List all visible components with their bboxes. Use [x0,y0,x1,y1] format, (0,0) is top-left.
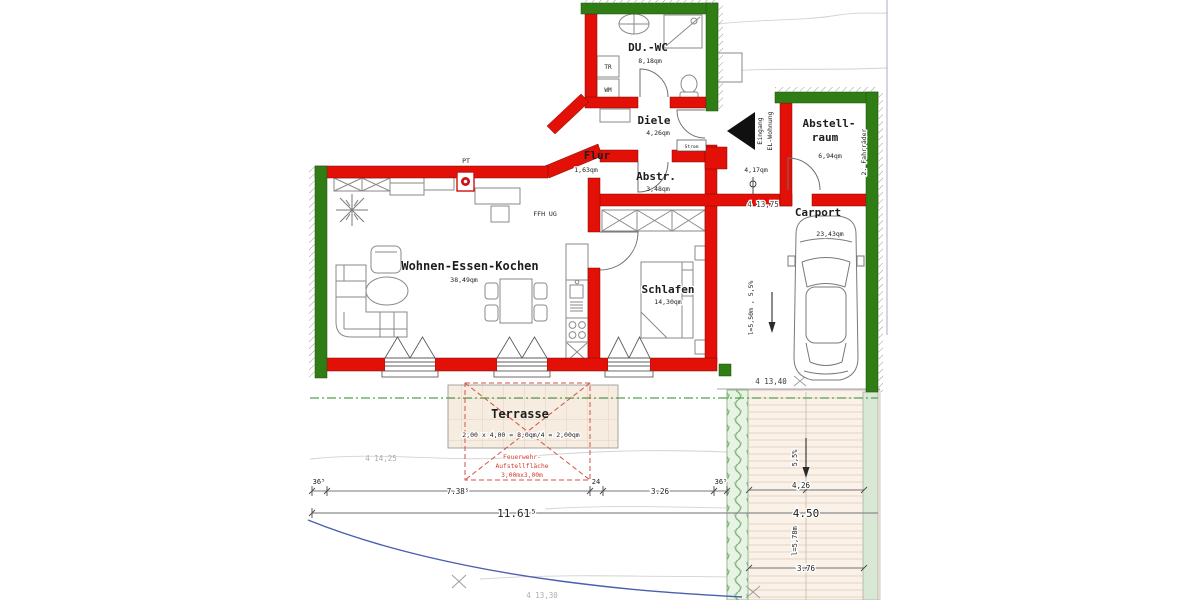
windows [382,337,653,377]
carport-slope-label: l=5,50m , 5,5% [747,281,755,336]
elevation-terrain-left: 4 14,25 [365,454,397,463]
room-area-wohnen: 38,49qm [450,276,477,284]
bike-storage-label: 2. Fahrräder [860,128,868,175]
room-area-abstr: 3,48qm [646,185,670,193]
feuerwehr-label-3: 3,00mx3,00m [501,472,543,479]
room-area-abstellraum: 6,94qm [818,152,842,160]
room-area-schlafen: 14,30qm [654,298,681,306]
dim-b1: 36⁵ [313,478,326,486]
car-icon [788,216,864,380]
room-label-carport: Carport [795,206,841,219]
floor-plan-canvas: DU.-WC 8,18qm Diele 4,26qm Flur 1,63qm A… [0,0,1200,600]
room-label-abstellraum-2: raum [812,131,839,144]
entry-area-label: 4,17qm [744,166,768,174]
room-label-duwc: DU.-WC [628,41,668,54]
dim-b5: 36⁵ [715,478,728,486]
washbasin [619,14,649,34]
elevation-top: 4 13,75 [747,200,779,209]
strom-label: Strom [685,144,699,150]
room-area-carport: 23,43qm [816,230,843,238]
dryer-label: TR [604,64,612,71]
room-label-terrasse: Terrasse [491,407,549,421]
window-bedroom [605,337,653,377]
elevation-carport-end: 4 13,40 [755,377,787,386]
wardrobe [602,210,705,231]
dim-b4: 3.26 [651,487,670,496]
driveway-length-label: l=5,78m [791,526,799,556]
eingang-label-2: EL-Wohnung [766,111,774,150]
feuerwehr-label-1: Feuerwehr- [503,454,541,461]
room-label-abstr: Abstr. [636,170,676,183]
driveway-slope-label: 5,5% [791,449,799,467]
feuerwehr-label-2: Aufstellfläche [495,463,548,470]
dim-drive-3: 3.76 [797,564,816,573]
room-label-wohnen: Wohnen-Essen-Kochen [401,259,538,273]
dim-drive-2: 4.50 [793,507,820,520]
plant-icon [336,194,368,226]
terrasse-calc: 2,00 x 4,00 = 8,0qm/4 = 2,00qm [462,431,579,439]
pt-label: PT [462,157,470,165]
eingang-label-1: Eingang [756,117,764,144]
dim-drive-1: 4,26 [792,481,811,490]
pt-downpipe [457,172,474,191]
hall-shelf [600,109,630,122]
dim-b2: 7.38⁵ [447,487,470,496]
room-label-diele: Diele [637,114,670,127]
room-area-flur: 1,63qm [574,166,598,174]
dim-total: 11.61⁵ [497,507,537,520]
room-label-abstellraum-1: Abstell- [803,117,856,130]
room-label-schlafen: Schlafen [642,283,695,296]
shower [664,15,702,48]
floor-plan-drawing: DU.-WC 8,18qm Diele 4,26qm Flur 1,63qm A… [0,0,1200,600]
coffee-table [366,277,408,305]
carport-slope-arrow-icon [769,292,776,333]
kitchen-unit [566,244,588,362]
elevation-terrain-bottom: 4 13,30 [526,591,558,600]
ffh-ug-label: FFH UG [533,210,557,218]
window-living-2 [494,337,550,377]
room-label-flur: Flur [584,149,611,162]
dim-b3: 24 [592,478,600,486]
hedge-strip [727,390,748,600]
room-area-duwc: 8,18qm [638,57,662,65]
washer-label: WM [604,87,612,94]
elevation-marker-top [750,177,756,194]
armchair [371,246,401,273]
dining-table [485,279,547,323]
window-living-1 [382,337,438,377]
entrance-arrow-icon [727,112,755,150]
green-border-strip [863,392,878,600]
room-area-diele: 4,26qm [646,129,670,137]
